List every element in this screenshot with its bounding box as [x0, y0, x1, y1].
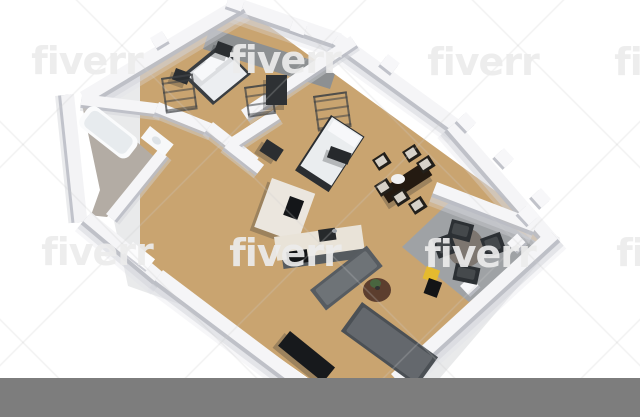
watermark-text: fiverr [31, 39, 143, 83]
watermark-text: fiverr [616, 231, 640, 275]
floorplan-render: fiverrfiverrfiverrfiverrfiverrfiverrfive… [0, 0, 640, 417]
watermark-layer: fiverrfiverrfiverrfiverrfiverrfiverrfive… [0, 0, 640, 417]
watermark-text: fiverr [427, 40, 539, 84]
watermark-text: fiverr [229, 231, 341, 275]
watermark-text: fiverr [614, 40, 640, 84]
watermark-text: fiverr [41, 230, 153, 274]
watermark-text: fiverr [424, 232, 536, 276]
footer-bar [0, 378, 640, 417]
watermark-text: fiverr [229, 38, 341, 82]
